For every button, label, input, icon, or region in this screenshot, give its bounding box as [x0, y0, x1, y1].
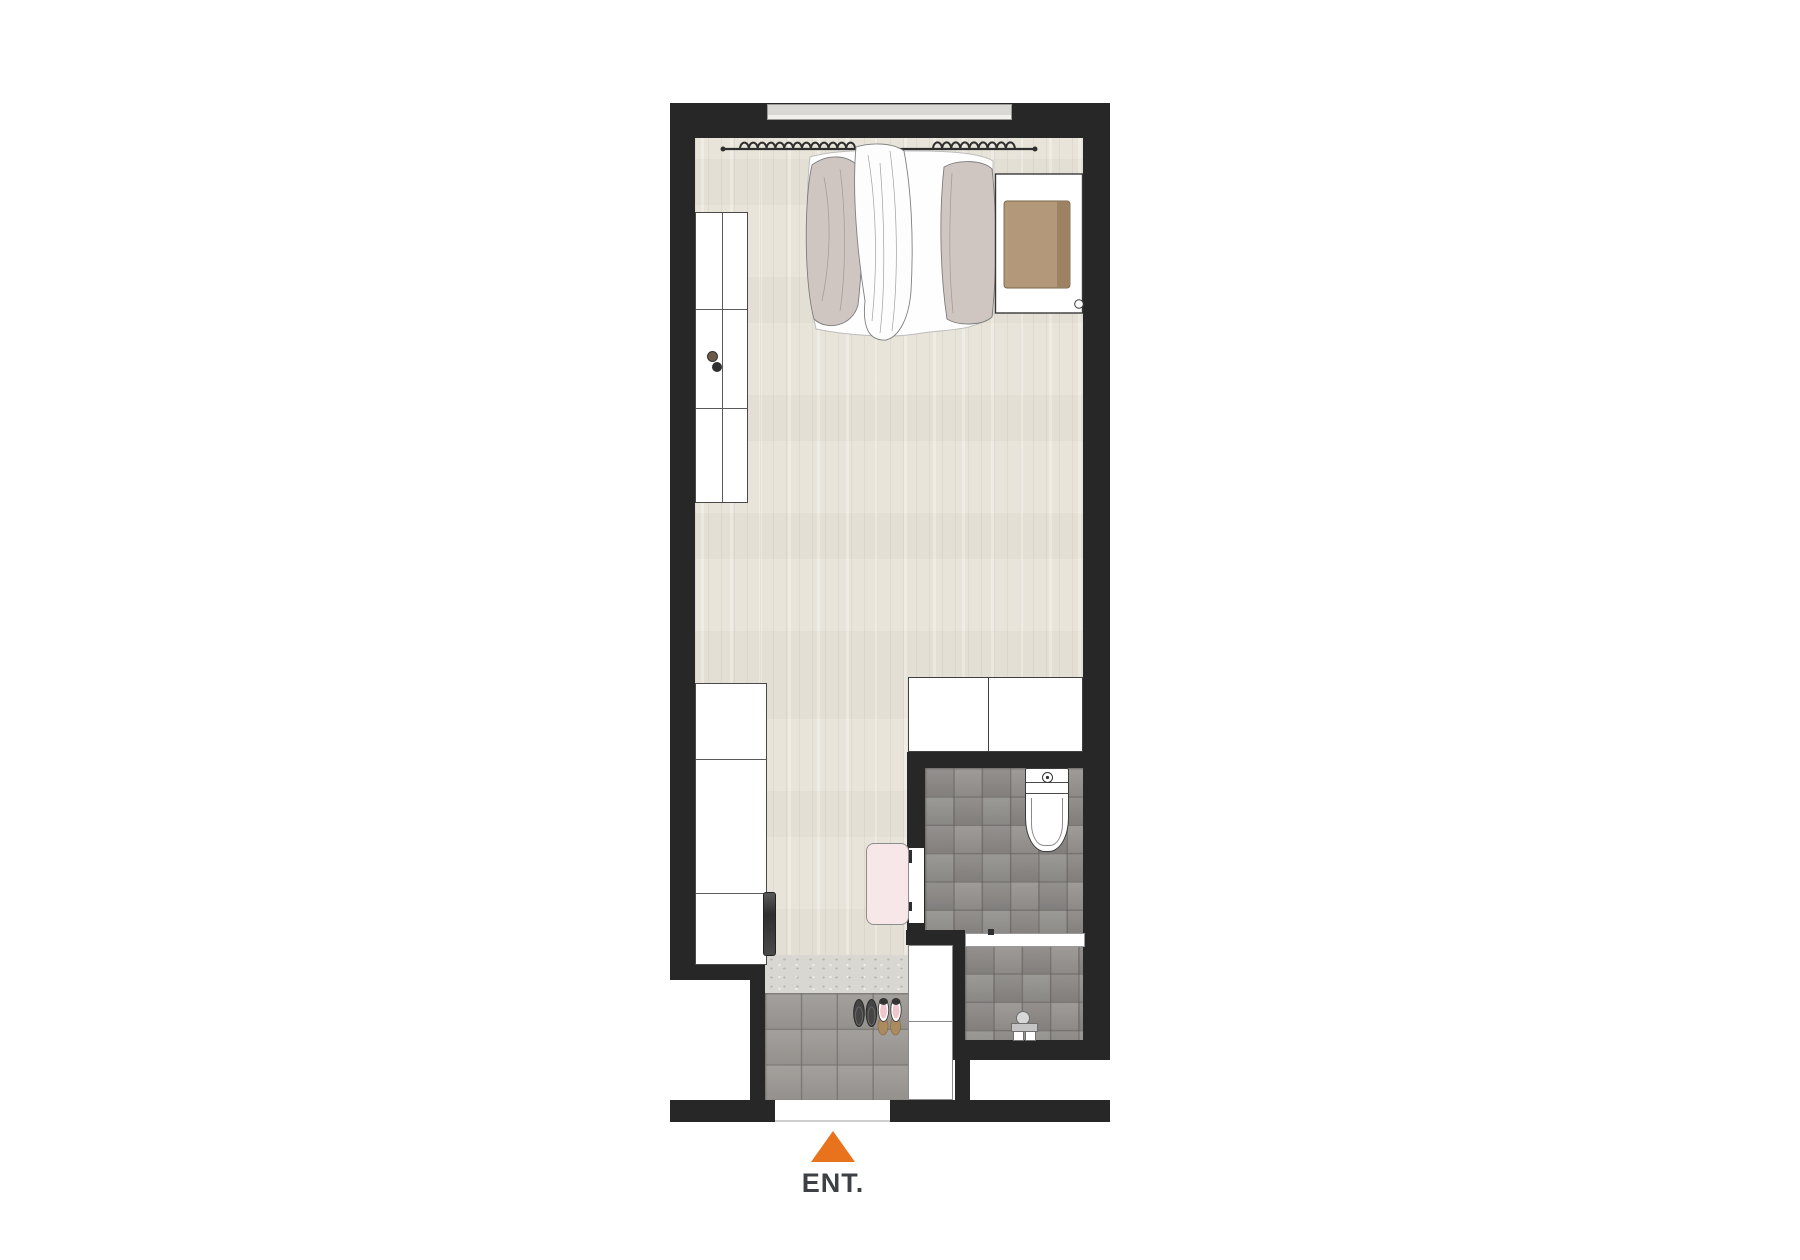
pillow [941, 162, 996, 324]
duvet [806, 157, 862, 326]
wall-right [1083, 103, 1110, 1060]
shower-knob-left [1013, 1031, 1024, 1041]
shower-screen [965, 933, 1085, 947]
wall-bottom-connector [955, 1060, 970, 1100]
toilet-bowl [1031, 798, 1063, 846]
storage-cabinet [695, 683, 767, 965]
shower-knob-right [1025, 1031, 1036, 1041]
entry-shoes [851, 997, 905, 1037]
screen-handle [988, 929, 994, 935]
wall-left-nib [670, 965, 765, 980]
utility-cabinet [908, 945, 953, 1100]
wall-bottom-right [890, 1100, 1110, 1122]
kitchen-counter [908, 677, 1083, 752]
wardrobe-knob-2 [712, 362, 722, 372]
entrance-arrow-icon [811, 1131, 855, 1162]
flush-button [1042, 772, 1053, 783]
wall-bathroom-top [907, 752, 1083, 768]
floorplan-canvas: ENT. [0, 0, 1800, 1260]
bathroom-door [909, 848, 924, 923]
wall-bathroom-mid [906, 930, 965, 945]
bed [800, 143, 1086, 343]
wall-shower-bottom [953, 1040, 1110, 1060]
window-sill [768, 115, 1011, 119]
wall-entry-left [750, 980, 765, 1100]
entrance-door [775, 1100, 890, 1122]
bath-mat [866, 843, 909, 925]
wardrobe [695, 212, 748, 503]
wall-shower-left [953, 945, 965, 1040]
toilet [1025, 768, 1069, 852]
wardrobe-divider [722, 213, 723, 502]
bedside-cup [1075, 300, 1084, 309]
window [767, 104, 1012, 120]
wall-left [670, 103, 695, 980]
tv [763, 892, 776, 956]
wall-bottom-left [670, 1100, 775, 1122]
entrance-label: ENT. [773, 1168, 893, 1199]
floor-plan [670, 103, 1110, 1122]
entry-step [765, 955, 908, 993]
wardrobe-knob [707, 351, 718, 362]
